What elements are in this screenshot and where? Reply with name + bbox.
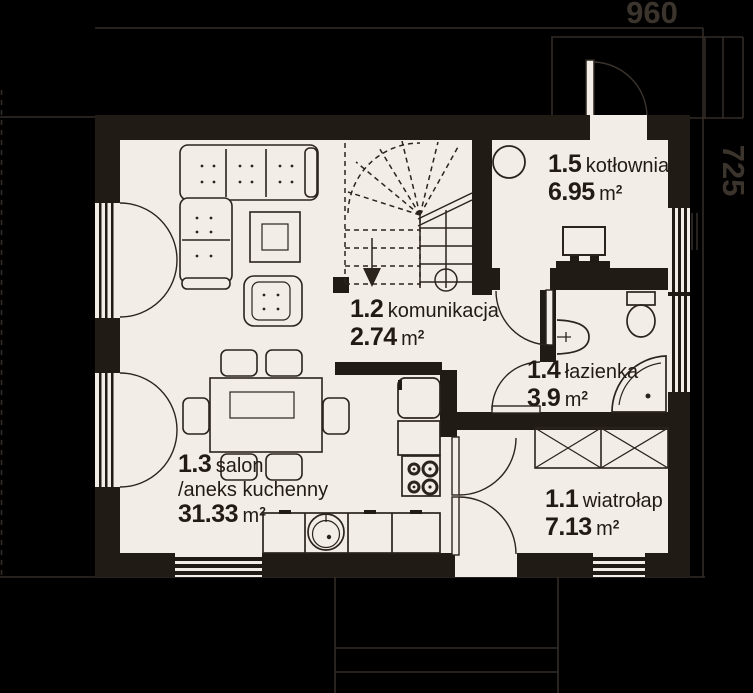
- room-number: 1.1: [545, 485, 578, 513]
- glazing-bar: [678, 296, 681, 392]
- glazing-bar: [678, 208, 681, 292]
- room-unit-sup: 2: [613, 517, 620, 531]
- room-unit-sup: 2: [616, 182, 623, 196]
- glazing-bar: [672, 296, 675, 392]
- coffee-table: [250, 212, 300, 262]
- glazing-bar: [111, 373, 114, 487]
- room-name: wiatrołap: [583, 490, 663, 512]
- room-name: komunikacja: [388, 300, 499, 322]
- dining-table: [210, 378, 322, 452]
- glazing-bar: [99, 203, 102, 318]
- room-unit-sup: 2: [259, 504, 266, 518]
- vestibule-door-leaf-1: [452, 437, 459, 495]
- room-unit: m: [565, 389, 582, 411]
- glazing-bar: [105, 373, 108, 487]
- room-unit: m: [599, 183, 616, 205]
- room-number: 1.4: [527, 356, 560, 384]
- kitchen-cabinet: [398, 421, 440, 455]
- armchair-outline: [244, 276, 302, 326]
- glazing-bar: [175, 564, 262, 568]
- cabinet-handle: [410, 510, 422, 514]
- room-unit: m: [596, 518, 613, 540]
- glazing-bar: [593, 557, 645, 561]
- coffee-table-top: [250, 212, 300, 262]
- wall-stairs-boiler: [472, 140, 492, 295]
- wall-stub-stairs: [333, 277, 349, 293]
- shower-drain: [646, 394, 651, 399]
- glazing-bar: [105, 203, 108, 318]
- room-unit: m: [401, 328, 418, 350]
- glazing-bar: [684, 296, 687, 392]
- room-number: 1.2: [350, 295, 383, 323]
- room-area: 7.13: [545, 513, 592, 541]
- dining-chair: [266, 350, 302, 376]
- entrance-door-leaf: [586, 60, 594, 117]
- dimension-height-label: 725: [717, 118, 751, 223]
- dining-chair: [183, 398, 209, 434]
- room-unit: m: [243, 505, 260, 527]
- wall-boiler-bottom-a: [492, 268, 500, 290]
- water-heater-icon: [493, 146, 525, 178]
- dining-chair: [221, 350, 257, 376]
- wall-hall-kitchen: [335, 362, 442, 375]
- room-label-kotlownia: 1.5 kotłownia 6.95 m2: [548, 151, 669, 206]
- sofa-armrest: [305, 148, 317, 197]
- room-label-lazienka: 1.4 łazienka 3.9 m2: [527, 357, 638, 412]
- room-area: 31.33: [178, 500, 238, 528]
- room-label-wiatrolap: 1.1 wiatrołap 7.13 m2: [545, 486, 663, 541]
- room-name-line2: /aneks kuchenny: [178, 479, 328, 501]
- front-door-opening: [455, 553, 517, 577]
- room-area: 3.9: [527, 384, 560, 412]
- room-number: 1.3: [178, 450, 211, 478]
- glazing-bar: [99, 373, 102, 487]
- cabinet-handle: [364, 510, 376, 514]
- glazing-bar: [593, 564, 645, 568]
- room-number: 1.5: [548, 150, 581, 178]
- armchair: [244, 276, 302, 326]
- boiler-icon: [563, 227, 605, 255]
- fridge-handle: [398, 380, 402, 390]
- glazing-bar: [593, 571, 645, 575]
- glazing-bar: [672, 208, 675, 292]
- wall-left: [95, 115, 120, 577]
- sink-drain: [327, 535, 331, 539]
- boiler-door-leaf: [546, 290, 553, 345]
- room-name: salon: [216, 455, 264, 477]
- glazing-bar: [175, 571, 262, 575]
- glazing-bar: [111, 203, 114, 318]
- vestibule-door-leaf-2: [452, 497, 459, 555]
- glazing-bar: [684, 208, 687, 292]
- floor-plan-page: 960 725 1.5 kotłownia 6.95 m2 1.2 komuni…: [0, 0, 753, 693]
- dining-chair: [323, 398, 349, 434]
- fridge: [398, 378, 440, 418]
- room-label-komunikacja: 1.2 komunikacja 2.74 m2: [350, 296, 499, 351]
- glazing-bar: [175, 557, 262, 561]
- room-unit-sup: 2: [418, 327, 425, 341]
- sofa-top-run: [180, 145, 318, 200]
- dimension-width-label: 960: [592, 0, 712, 31]
- room-name: łazienka: [565, 361, 638, 383]
- room-unit-sup: 2: [581, 388, 588, 402]
- boiler-pedestal: [556, 261, 610, 286]
- room-name: kotłownia: [586, 155, 669, 177]
- sofa-armrest: [182, 278, 230, 289]
- room-area: 6.95: [548, 178, 595, 206]
- entrance-opening: [590, 115, 647, 140]
- wall-salon-vestibule: [440, 370, 457, 437]
- room-label-salon: 1.3 salon /aneks kuchenny 31.33 m2: [178, 451, 328, 528]
- room-area: 2.74: [350, 323, 397, 351]
